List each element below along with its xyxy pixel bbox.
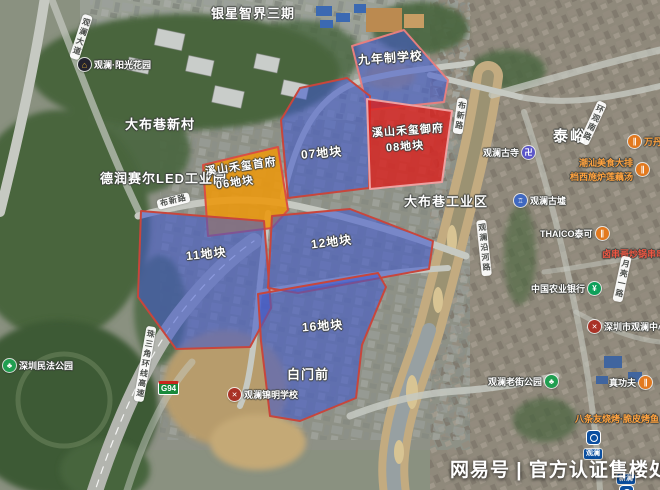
satellite-map[interactable]: 银星智界三期 大布巷新村 德润赛尔LED工业园 大布巷工业区 泰峪 白门前 九年… (0, 0, 660, 490)
poi-old-street-park[interactable]: 观澜老街公园 ♣ (488, 375, 558, 388)
park-icon: ♣ (3, 359, 16, 372)
poi-zhengongfu[interactable]: 真功夫 ∥ (609, 376, 652, 389)
poi-guanlan-central-school[interactable]: ✕ 深圳市观澜中心小学 (588, 320, 660, 333)
poi-label-line2: 档西施炉莲藕汤 (570, 170, 633, 183)
poi-label: 观澜古墟 (530, 194, 566, 207)
poi-label: 观澜古寺 (483, 146, 519, 159)
historic-site-icon: ♖ (514, 194, 527, 207)
poi-sunshine-garden[interactable]: ⌂ 观澜·阳光花园 (78, 58, 151, 71)
poi-label: 深圳市观澜中心小学 (604, 320, 660, 333)
poi-label: THAICO泰可 (540, 227, 593, 240)
expressway-badge-g94: G94 (158, 381, 179, 395)
poi-agricultural-bank[interactable]: 中国农业银行 ¥ (531, 282, 601, 295)
park-icon: ♣ (545, 375, 558, 388)
poi-chaoshan-restaurant[interactable]: 潮汕美食大排 档西施炉莲藕汤 ∥ (570, 156, 649, 183)
temple-icon: 卍 (522, 146, 535, 159)
area-label-baimenqian: 白门前 (287, 368, 329, 383)
school-icon: ✕ (228, 388, 241, 401)
restaurant-icon: ∥ (636, 163, 649, 176)
metro-icon-xinlan[interactable] (620, 486, 633, 490)
poi-label-line1: 潮汕美食大排 (579, 156, 633, 169)
watermark: 网易号 | 官方认证售楼处 (450, 455, 660, 482)
bank-icon: ¥ (588, 282, 601, 295)
area-label-yinxing: 银星智界三期 (211, 7, 295, 22)
poi-guanlan-old-market[interactable]: ♖ 观澜古墟 (514, 194, 566, 207)
poi-guanlan-temple[interactable]: 观澜古寺 卍 (483, 146, 535, 159)
poi-label: 万丹 (644, 135, 660, 148)
parcel-11[interactable] (138, 211, 271, 349)
poi-jinming-school[interactable]: ✕ 观澜锦明学校 (228, 388, 298, 401)
school-icon: ✕ (588, 320, 601, 333)
restaurant-icon: ∥ (628, 135, 641, 148)
parcel-label-08: 08地块 (386, 140, 425, 155)
poi-label: 八条友烧烤·脆皮烤鱼 (575, 412, 659, 425)
poi-label: 观澜老街公园 (488, 375, 542, 388)
parcel-label-16: 16地块 (302, 319, 344, 336)
poi-label: 观澜锦明学校 (244, 388, 298, 401)
poi-label: 中国农业银行 (531, 282, 585, 295)
parcel-07[interactable] (281, 78, 370, 198)
poi-label: 观澜·阳光花园 (94, 58, 151, 71)
poi-civil-law-park[interactable]: ♣ 深圳民法公园 (3, 359, 73, 372)
area-label-industrial: 大布巷工业区 (404, 195, 488, 210)
metro-icon-guanlan[interactable] (587, 431, 600, 444)
restaurant-icon: ∥ (596, 227, 609, 240)
poi-label: 深圳民法公园 (19, 359, 73, 372)
poi-wandan-restaurant[interactable]: ∥ 万丹 (628, 135, 660, 148)
poi-bbq-restaurant[interactable]: 八条友烧烤·脆皮烤鱼 ∥ (575, 412, 660, 425)
restaurant-icon: ∥ (639, 376, 652, 389)
poi-label: 真功夫 (609, 376, 636, 389)
estate-icon: ⌂ (78, 58, 91, 71)
poi-thaico[interactable]: THAICO泰可 ∥ (540, 227, 609, 240)
area-label-dabuxiang-village: 大布巷新村 (125, 118, 195, 133)
